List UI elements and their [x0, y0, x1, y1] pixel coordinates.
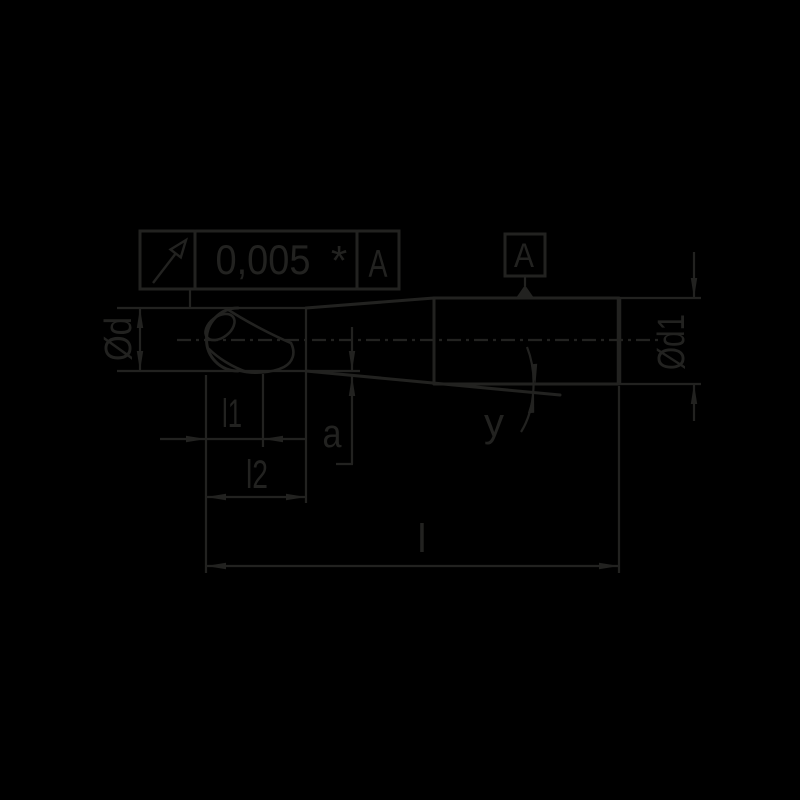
datum-label: A — [514, 237, 534, 275]
dim-clearance-a: a — [323, 327, 356, 464]
arrow-right-icon — [186, 436, 206, 442]
dim-shank-diameter: Ød1 — [619, 252, 701, 421]
arrow-up-icon — [528, 393, 534, 413]
tolerance-datum-ref: A — [369, 243, 388, 286]
a-label: a — [323, 412, 343, 456]
dim-flute-length: l1 — [160, 374, 306, 447]
arrow-down-icon — [349, 351, 355, 371]
angle-arc — [521, 347, 534, 432]
feature-control-frame: 0,005 * A — [140, 231, 399, 309]
l1-label: l1 — [222, 392, 242, 436]
dim-cut-length: l2 — [206, 453, 306, 500]
arrow-left-icon — [206, 494, 226, 500]
l-label: l — [418, 517, 427, 561]
technical-drawing-canvas: 0,005 * A A — [0, 0, 800, 800]
circular-runout-icon — [153, 240, 186, 283]
arrow-up-icon — [349, 376, 355, 396]
angle-label: y — [484, 401, 504, 445]
arrow-up-icon — [691, 384, 697, 404]
dim-taper-angle: y — [484, 347, 537, 445]
d1-label: Ød1 — [651, 314, 693, 370]
l2-label: l2 — [246, 453, 268, 497]
arrow-right-icon — [286, 494, 306, 500]
tool-outline — [117, 298, 619, 503]
tolerance-note-asterisk: * — [331, 237, 347, 284]
taper-top-line — [306, 298, 434, 308]
arrow-down-icon — [691, 278, 697, 298]
arrow-right-icon — [599, 563, 619, 569]
dim-head-diameter: Ød — [98, 308, 143, 371]
datum-feature-symbol: A — [505, 234, 545, 298]
d-label: Ød — [98, 317, 140, 361]
datum-triangle-icon — [516, 285, 534, 298]
tolerance-value: 0,005 — [216, 236, 311, 283]
arrow-left-icon — [206, 563, 226, 569]
arrow-left-icon — [263, 436, 283, 442]
